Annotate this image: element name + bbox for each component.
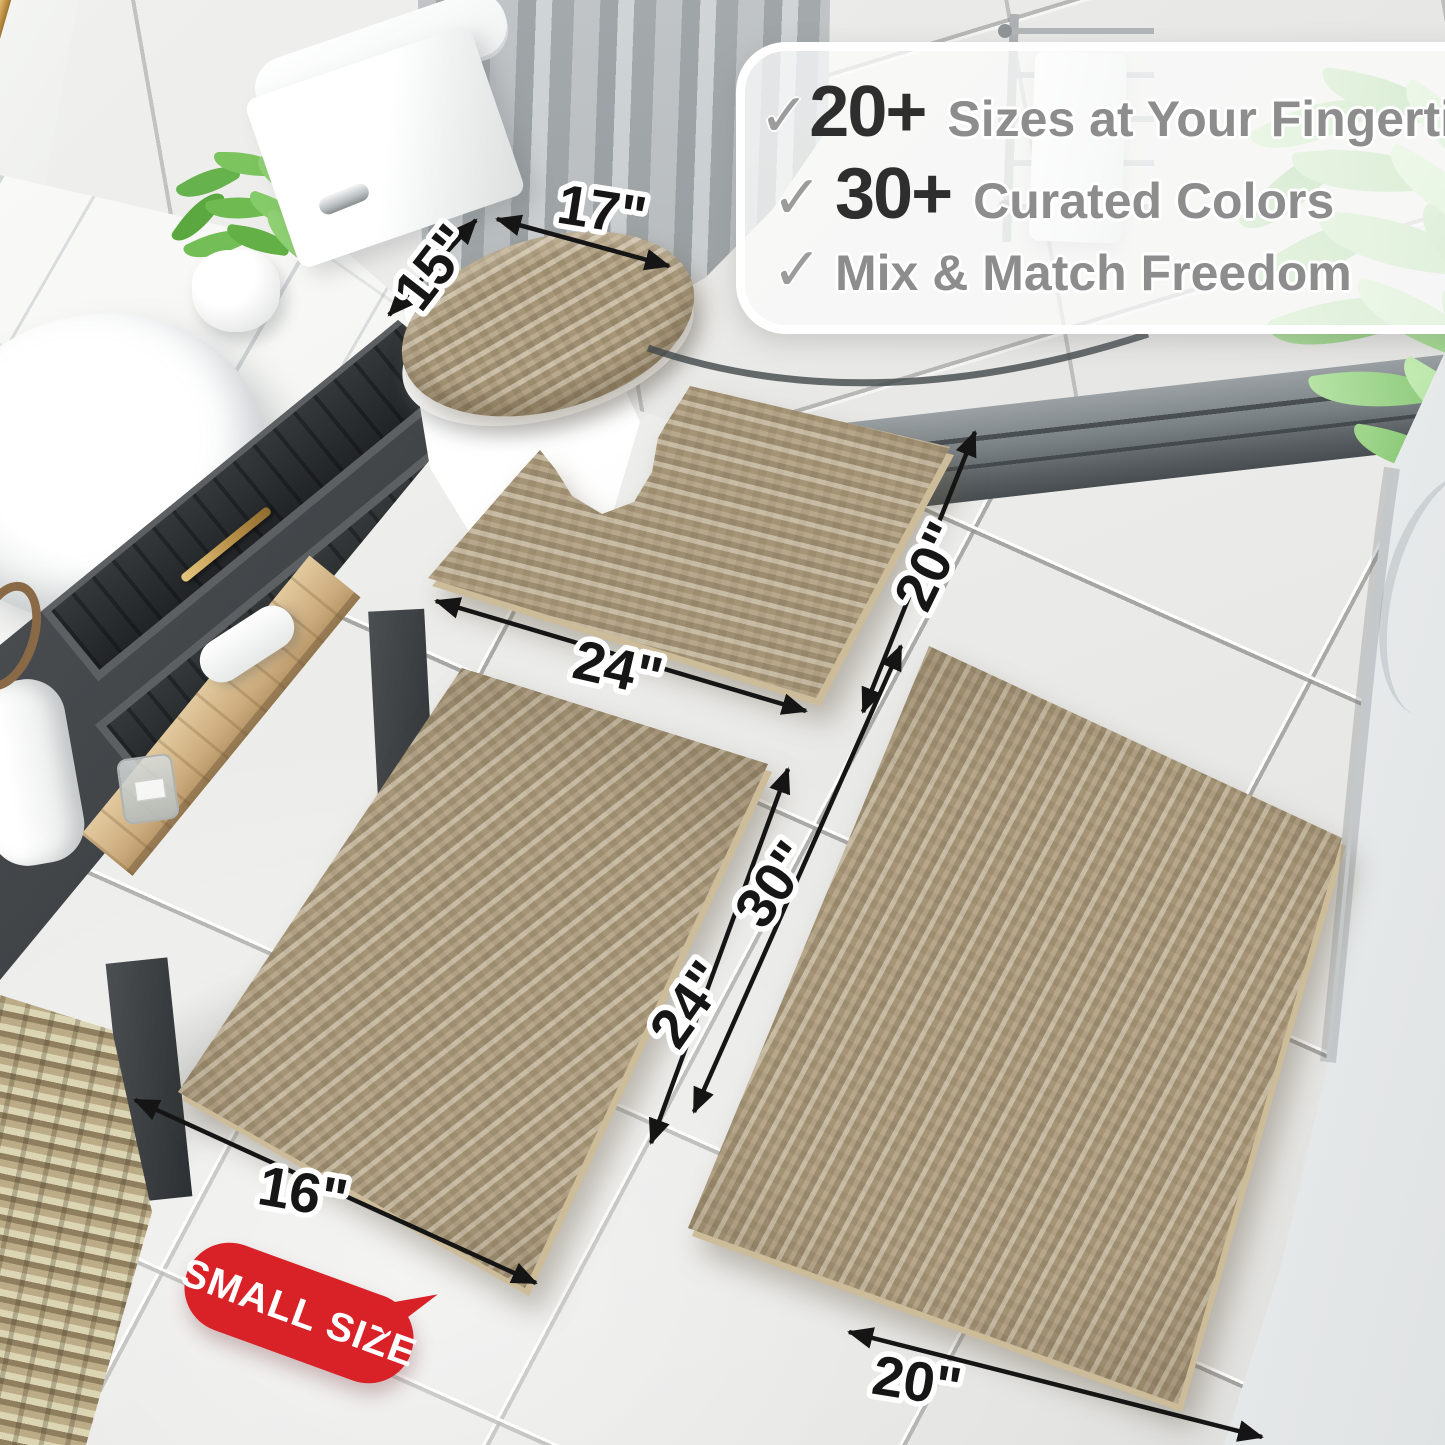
feature-row: ✓ 30+ Curated Colors (759, 158, 1445, 230)
check-icon: ✓ (759, 86, 809, 146)
feature-row: ✓ 20+ Sizes at Your Fingertips (759, 76, 1445, 148)
check-icon: ✓ (759, 168, 835, 228)
feature-number: 30+ (835, 158, 951, 230)
feature-text: Sizes at Your Fingertips (947, 94, 1445, 144)
check-icon: ✓ (759, 240, 835, 300)
feature-callout: ✓ 20+ Sizes at Your Fingertips ✓ 30+ Cur… (736, 42, 1445, 334)
feature-number: 20+ (809, 76, 925, 148)
feature-text: Curated Colors (973, 176, 1334, 226)
feature-row: ✓ Mix & Match Freedom (759, 240, 1445, 300)
feature-text: Mix & Match Freedom (835, 248, 1352, 298)
product-scene: 15" 17" 24" 20" 30" 24" 16" 20" SMALL SI… (0, 0, 1445, 1445)
